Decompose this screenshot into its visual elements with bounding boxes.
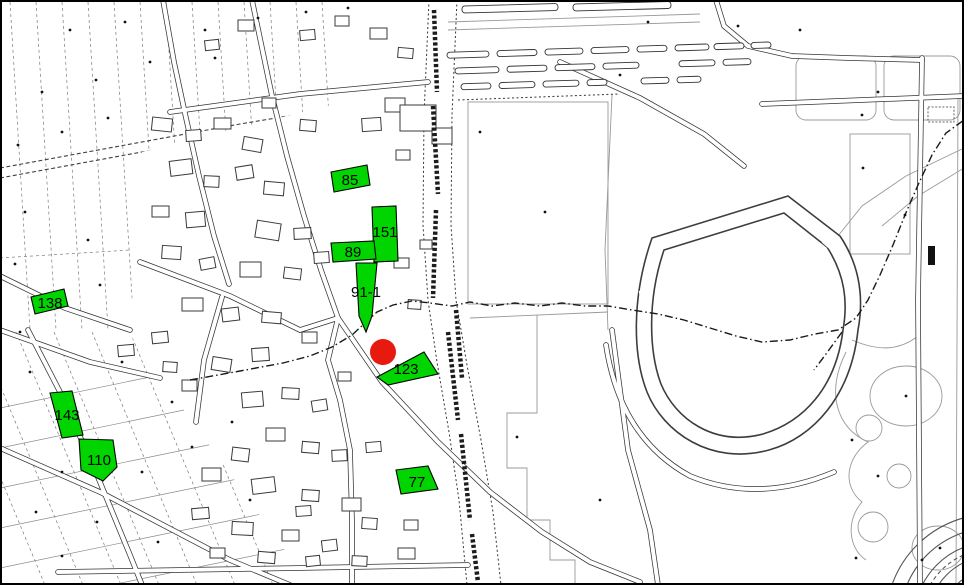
parcel-label-123: 123	[393, 361, 418, 378]
parcel-label-151: 151	[372, 224, 397, 241]
parcel-label-85: 85	[342, 172, 359, 189]
parcel-label-77: 77	[409, 474, 426, 491]
parcel-label-138: 138	[37, 295, 62, 312]
map-canvas[interactable]: 851518991-112377138143110	[0, 0, 964, 585]
selected-location-marker[interactable]	[370, 339, 396, 365]
parcel-label-91-1: 91-1	[351, 284, 381, 301]
parcel-label-143: 143	[54, 407, 79, 424]
parcel-label-110: 110	[87, 452, 111, 469]
cadastral-map: 851518991-112377138143110	[0, 0, 964, 585]
marker-layer	[370, 339, 396, 365]
parcel-label-89: 89	[345, 244, 362, 261]
